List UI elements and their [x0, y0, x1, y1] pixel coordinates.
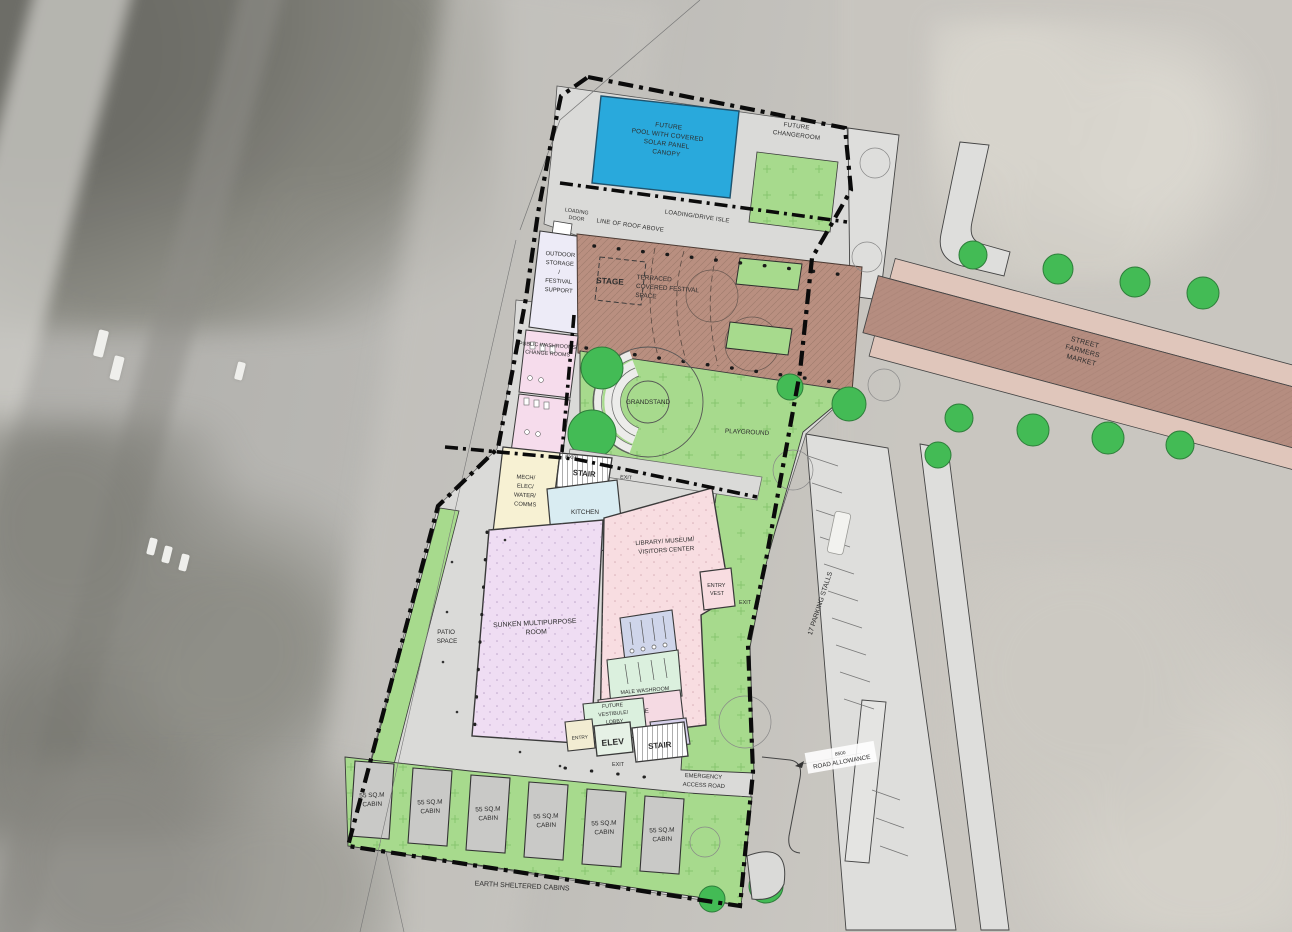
grandstand-label: GRANDSTAND	[626, 399, 671, 406]
kitchen-label: KITCHEN	[571, 509, 599, 516]
cabin	[640, 796, 684, 874]
cabin	[524, 782, 568, 860]
cabin	[582, 789, 626, 867]
elev-label: ELEV	[601, 736, 624, 748]
entry-vest-room	[700, 568, 735, 610]
cabin	[350, 761, 394, 839]
tree-outline	[868, 369, 900, 401]
exit-label: EXIT	[612, 762, 625, 768]
exit-label: EXIT	[739, 600, 752, 606]
driveway-curve	[762, 757, 801, 853]
cabin	[408, 768, 452, 846]
exit-label: EXIT	[620, 474, 633, 481]
cabin	[466, 775, 510, 853]
corner-island	[747, 852, 785, 900]
site-plan-screenshot: STREET FARMERS MARKET FUTURE POOL WITH C…	[0, 0, 1292, 932]
entry-room	[565, 719, 595, 751]
festival-lawn-patch	[736, 258, 802, 290]
site-plan-drawing: STREET FARMERS MARKET FUTURE POOL WITH C…	[0, 0, 1292, 932]
survey-line	[386, 852, 404, 932]
earth-cabins-label: EARTH SHELTERED CABINS	[474, 881, 570, 893]
